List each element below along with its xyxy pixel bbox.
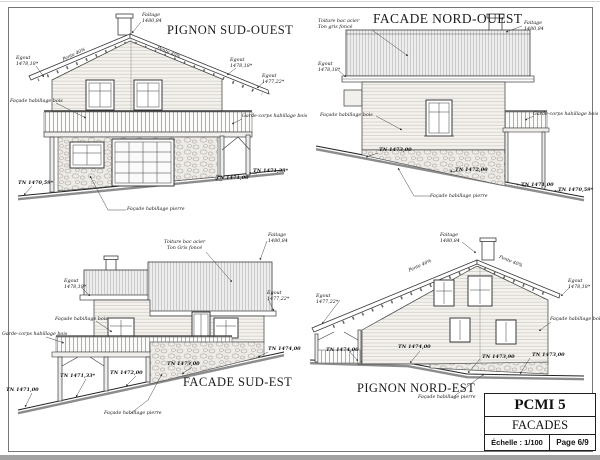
nw-tn-2: TN 1472,00 <box>455 167 488 173</box>
sw-faitage-label: Faitage 1480,84 <box>142 13 162 25</box>
nw-title: FACADE NORD-OUEST <box>373 11 522 27</box>
sw-faitage-value: 1480,84 <box>142 19 162 25</box>
ne-tn-4: TN 1473,00 <box>532 352 565 358</box>
title-block-bottom-row: Échelle : 1/100 Page 6/9 <box>485 434 595 450</box>
nw-faitage-value: 1480,84 <box>524 27 544 33</box>
sw-tn-left: TN 1470,59* <box>18 180 53 186</box>
sw-garde-corps-label: Garde-corps habillage bois <box>242 114 307 120</box>
title-block-code: PCMI 5 <box>485 394 595 416</box>
se-toiture-value: Ton Gris foncé <box>164 246 205 252</box>
sw-egout-low-value: 1477,22* <box>262 80 284 86</box>
title-block-scale: Échelle : 1/100 <box>485 435 549 450</box>
sw-egout-low-label: Egout 1477,22* <box>262 74 284 86</box>
title-block: PCMI 5 FACADES Échelle : 1/100 Page 6/9 <box>484 393 596 451</box>
se-faitage-label: Faitage 1480,84 <box>268 233 288 245</box>
se-egout-left-value: 1478,18* <box>64 285 86 291</box>
sw-facade-pierre-label: Façade habillage pierre <box>127 207 185 213</box>
nw-elevation <box>316 14 584 200</box>
nw-tn-1: TN 1473,00 <box>379 147 412 153</box>
se-tn-1: TN 1471,00 <box>6 387 39 393</box>
nw-garde-corps-label: Garde-corps habillage bois <box>533 112 598 118</box>
nw-tn-4: TN 1470,59* <box>558 187 593 193</box>
nw-egout-value: 1478,18* <box>318 68 340 74</box>
drawing-sheet: PIGNON SUD-OUEST Faitage 1480,84 Pente 4… <box>0 0 600 460</box>
ne-egout-right-value: 1478,18* <box>568 285 590 291</box>
se-facade-bois-label: Façade habillage bois <box>55 317 108 323</box>
sw-egout-right-label: Egout 1478,18* <box>230 58 252 70</box>
ne-facade-bois-label: Façade habillage bois <box>550 317 600 323</box>
ne-tn-2: TN 1474,00 <box>398 344 431 350</box>
se-tn-5: TN 1474,00 <box>268 346 301 352</box>
nw-egout-label: Egout 1478,18* <box>318 62 340 74</box>
se-tn-3: TN 1472,00 <box>110 370 143 376</box>
nw-facade-bois-label: Façade habillage bois <box>320 113 373 119</box>
title-block-page: Page 6/9 <box>549 435 595 450</box>
ne-egout-left-label: Egout 1477,22* <box>316 294 338 306</box>
se-egout-right-value: 1477,22* <box>267 297 289 303</box>
ne-title: PIGNON NORD-EST <box>357 381 475 396</box>
sw-egout-right-value: 1478,18* <box>230 64 252 70</box>
elevations-canvas <box>0 0 600 460</box>
ne-facade-pierre-label: Façade habillage pierre <box>418 395 476 401</box>
se-egout-left-label: Egout 1478,18* <box>64 279 86 291</box>
sw-tn-right: TN 1471,33* <box>253 168 288 174</box>
sw-egout-left-value: 1478,18* <box>16 62 38 68</box>
se-tn-4: TN 1473,00 <box>167 361 200 367</box>
se-toiture-label: Toiture bac acier Ton Gris foncé <box>164 240 205 252</box>
title-block-name: FACADES <box>485 416 595 434</box>
se-egout-right-label: Egout 1477,22* <box>267 291 289 303</box>
se-tn-2: TN 1471,33* <box>60 373 95 379</box>
nw-toiture-label: Toiture bac acier Ton gris foncé <box>318 19 359 31</box>
sw-title: PIGNON SUD-OUEST <box>167 23 293 38</box>
se-facade-pierre-label: Façade habillage pierre <box>104 411 162 417</box>
se-garde-corps-label: Garde-corps habillage bois <box>2 332 67 338</box>
ne-faitage-label: Faitage 1480,84 <box>440 233 460 245</box>
ne-egout-left-value: 1477,22* <box>316 300 338 306</box>
sw-egout-left-label: Egout 1478,18* <box>16 56 38 68</box>
sw-facade-bois-label: Façade habillage bois <box>10 99 63 105</box>
se-title: FACADE SUD-EST <box>183 375 292 390</box>
ne-elevation <box>310 238 584 398</box>
ne-egout-right-label: Egout 1478,18* <box>568 279 590 291</box>
sw-tn-mid: TN 1471,00 <box>216 175 249 181</box>
scan-bottom-edge <box>0 455 600 460</box>
ne-tn-1: TN 1474,00 <box>326 347 359 353</box>
nw-toiture-value: Ton gris foncé <box>318 25 359 31</box>
ne-faitage-value: 1480,84 <box>440 239 460 245</box>
se-faitage-value: 1480,84 <box>268 239 288 245</box>
nw-facade-pierre-label: Façade habillage pierre <box>430 194 488 200</box>
ne-tn-3: TN 1473,90 <box>482 354 515 360</box>
nw-faitage-label: Faitage 1480,84 <box>524 21 544 33</box>
nw-tn-3: TN 1471,00 <box>521 182 554 188</box>
